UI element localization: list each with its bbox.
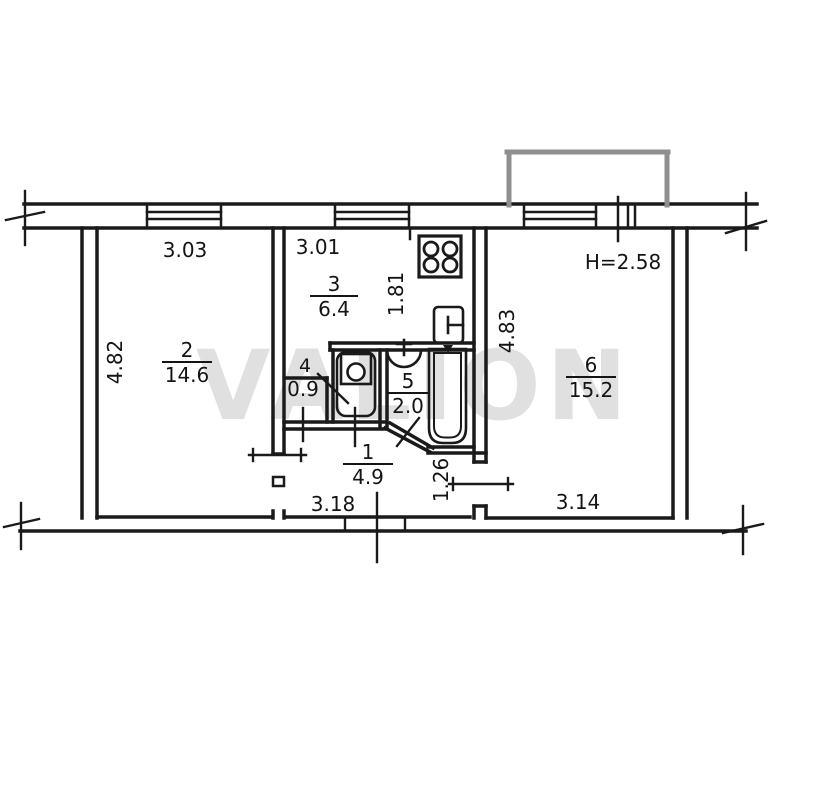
dim-room6-width: 3.14 [556, 490, 601, 514]
room3-number: 3 [324, 273, 345, 295]
dim-room2-depth: 4.82 [103, 340, 127, 385]
room5-number: 5 [398, 370, 419, 392]
room5-label: 5 2.0 [387, 370, 429, 417]
room1-number: 1 [358, 441, 379, 463]
stove-icon [419, 236, 461, 277]
floor-plan: VALION [0, 0, 814, 800]
room1-area: 4.9 [350, 465, 386, 488]
dim-room2-width: 3.03 [163, 238, 208, 262]
toilet-icon [337, 352, 375, 416]
dim-hall-width: 3.18 [311, 492, 356, 516]
room6-number: 6 [581, 354, 602, 376]
room2-number: 2 [177, 339, 198, 361]
dim-kitchen-width: 3.01 [296, 235, 341, 259]
room4-area: 0.9 [287, 377, 319, 401]
room6-area: 15.2 [567, 378, 616, 401]
room6-label: 6 15.2 [566, 354, 616, 401]
room3-area: 6.4 [316, 297, 352, 320]
room5-area: 2.0 [390, 394, 426, 417]
balcony [507, 152, 668, 205]
room4-number: 4 [299, 355, 311, 377]
room1-label: 1 4.9 [343, 441, 393, 488]
ceiling-height-label: H=2.58 [585, 250, 661, 274]
bathtub-icon [429, 345, 466, 443]
dim-kitchen-depth: 1.81 [384, 272, 408, 317]
kitchen-sink-icon [434, 307, 463, 343]
dim-hall-door-width: 1.26 [429, 458, 453, 503]
room2-area: 14.6 [163, 363, 212, 386]
dim-room6-depth: 4.83 [495, 309, 519, 354]
room3-label: 3 6.4 [310, 273, 358, 320]
room2-label: 2 14.6 [162, 339, 212, 386]
